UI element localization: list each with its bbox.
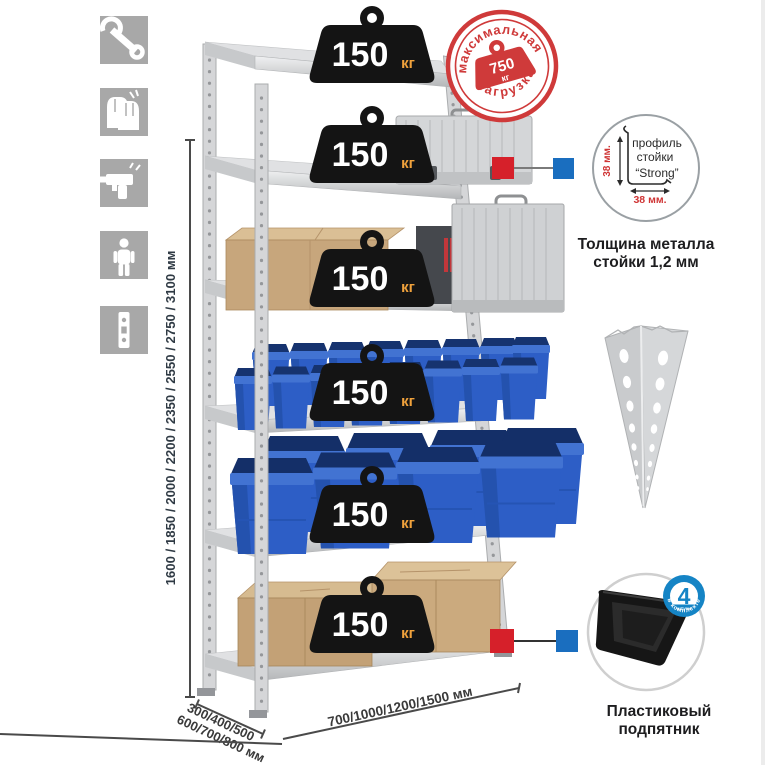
foot-detail-circle: 4 штуки в комплекте [588,574,705,690]
svg-text:кг: кг [401,393,415,410]
svg-text:150: 150 [332,496,389,534]
wrench-icon [100,16,148,64]
perforated-post-icon [100,306,148,354]
profile-label-3: “Strong” [635,166,678,180]
foot-callout [490,629,578,653]
profile-caption-line2: стойки 1,2 мм [593,254,698,271]
product-infographic: 1600 / 1850 / 2000 / 2200 / 2350 / 2550 … [0,0,765,765]
infographic-canvas: 1600 / 1850 / 2000 / 2200 / 2350 / 2550 … [0,0,765,765]
svg-text:кг: кг [401,279,415,296]
load-weight-1: 150 кг [310,10,435,84]
svg-text:150: 150 [332,606,389,644]
profile-detail-circle: 38 мм. 38 мм. профиль стойки “Strong” [593,115,699,221]
profile-callout [492,157,574,179]
foot-caption-line1: Пластиковый [607,703,712,720]
load-weights: 150 кг 150 кг 150 кг 150 кг 150 кг [310,10,435,654]
width-options-label: 700/1000/1200/1500 мм [326,684,473,730]
person-icon [100,231,148,279]
height-options-label: 1600 / 1850 / 2000 / 2200 / 2350 / 2550 … [163,251,178,586]
svg-text:кг: кг [401,155,415,172]
svg-text:150: 150 [332,260,389,298]
callout-blue-marker [553,158,574,179]
foot-plate [197,688,215,696]
drill-icon [100,159,148,207]
profile-dim-horizontal: 38 мм. [633,194,666,206]
svg-text:150: 150 [332,36,389,74]
foot-caption-line2: подпятник [618,721,699,738]
metal-case [452,196,564,312]
callout-blue-marker [556,630,578,652]
svg-text:150: 150 [332,374,389,412]
svg-text:кг: кг [401,625,415,642]
callout-red-marker [492,157,514,179]
height-dimension: 1600 / 1850 / 2000 / 2200 / 2350 / 2550 … [163,140,195,697]
profile-label-1: профиль [632,136,682,150]
profile-dim-vertical: 38 мм. [602,145,613,177]
svg-text:кг: кг [401,515,415,532]
profile-label-2: стойки [637,150,674,164]
post-profile-image [605,326,688,508]
svg-text:кг: кг [401,55,415,72]
page-edge [761,0,765,765]
svg-text:150: 150 [332,136,389,174]
profile-caption-line1: Толщина металла [578,236,715,253]
assembly-icons [100,16,148,354]
callout-red-marker [490,629,514,653]
gloves-icon [100,88,148,136]
quantity-badge: 4 штуки в комплекте [663,575,705,617]
